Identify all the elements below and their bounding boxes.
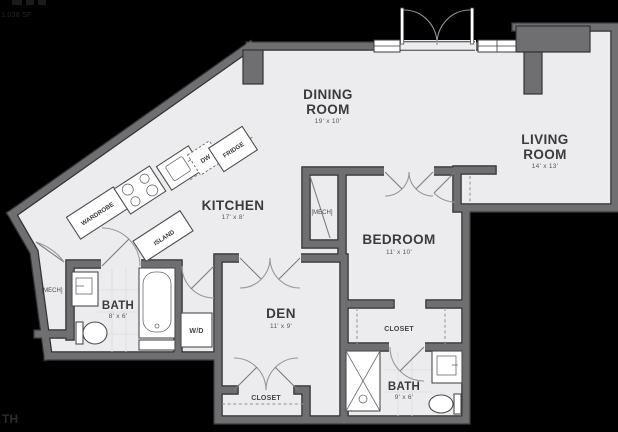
window bbox=[478, 40, 516, 52]
bath-second-label: BATH bbox=[388, 381, 420, 393]
toilet bbox=[76, 322, 107, 344]
wall-notch bbox=[243, 50, 263, 84]
living-room-label-2: ROOM bbox=[523, 147, 567, 162]
vanity-sink bbox=[432, 351, 462, 383]
washer-dryer: W/D bbox=[181, 313, 212, 347]
kitchen-dim: 17' x 8' bbox=[222, 214, 245, 221]
den-label: DEN bbox=[266, 306, 296, 321]
dining-room-label-1: DINING bbox=[303, 87, 353, 102]
watermark-text: TH bbox=[2, 412, 18, 426]
bathtub bbox=[139, 268, 175, 350]
dining-room-label-2: ROOM bbox=[306, 102, 350, 117]
bath-main-door-opening bbox=[101, 258, 141, 270]
column-block bbox=[516, 26, 590, 52]
mech-entry-label: [MECH] bbox=[42, 288, 63, 294]
bedroom-dim: 11' x 10' bbox=[386, 249, 412, 256]
clipped-label-fragment bbox=[12, 0, 46, 5]
french-door bbox=[401, 8, 474, 45]
washer-dryer-label: W/D bbox=[189, 328, 203, 335]
den-closet-label: CLOSET bbox=[251, 395, 281, 402]
dining-room-dim: 19' x 10' bbox=[315, 118, 342, 125]
den-dim: 11' x 9' bbox=[270, 323, 292, 330]
shower bbox=[346, 351, 380, 411]
living-room-dim: 14' x 13' bbox=[532, 163, 559, 170]
floorplan-page: WARDROBE DW FRIDGE ISLAND bbox=[0, 0, 618, 432]
vanity-sink bbox=[72, 272, 98, 306]
bath-main-dim: 8' x 6' bbox=[109, 313, 128, 320]
column-leg bbox=[524, 52, 542, 94]
floorplan-canvas: WARDROBE DW FRIDGE ISLAND bbox=[0, 0, 618, 432]
kitchen-label: KITCHEN bbox=[202, 198, 265, 213]
unit-area-text: 1,038 SF bbox=[1, 10, 32, 19]
bedroom-closet-label: CLOSET bbox=[384, 326, 414, 333]
mech-bedroom-label: [MECH] bbox=[312, 210, 333, 216]
bath-main-label: BATH bbox=[102, 300, 134, 312]
bedroom-label: BEDROOM bbox=[362, 232, 435, 247]
window bbox=[374, 40, 400, 52]
toilet bbox=[429, 394, 461, 414]
living-room-label-1: LIVING bbox=[521, 132, 568, 147]
bath-second-dim: 9' x 6' bbox=[395, 394, 414, 401]
